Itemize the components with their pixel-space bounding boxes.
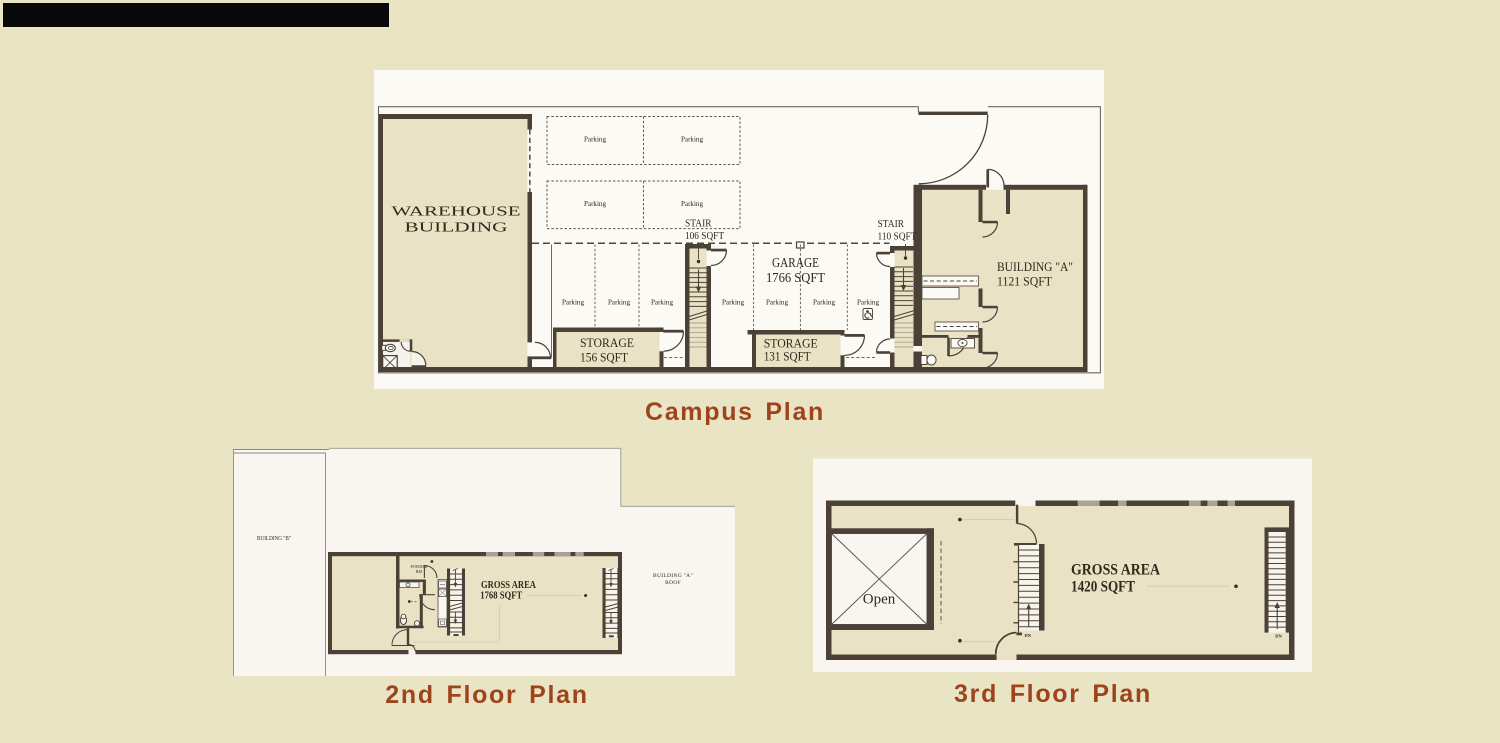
svg-text:1420 SQFT: 1420 SQFT [1071,578,1136,595]
svg-text:Parking: Parking [681,199,703,208]
svg-text:GARAGE: GARAGE [772,255,819,270]
svg-text:WAREHOUSE: WAREHOUSE [392,205,521,220]
svg-text:1121 SQFT: 1121 SQFT [997,274,1052,289]
svg-text:STORAGE: STORAGE [580,336,634,350]
svg-text:1768 SQFT: 1768 SQFT [480,590,523,602]
svg-text:STAIR: STAIR [685,219,712,230]
svg-text:DN: DN [1025,633,1032,638]
svg-text:DN: DN [1275,634,1282,639]
svg-text:Parking: Parking [584,199,606,208]
svg-text:Parking: Parking [813,298,835,307]
svg-text:Parking: Parking [584,135,606,144]
svg-text:BUILDING "A": BUILDING "A" [653,573,693,579]
svg-text:156 SQFT: 156 SQFT [580,351,628,365]
svg-text:110 SQFT: 110 SQFT [878,232,917,243]
svg-text:BUILDING: BUILDING [405,221,508,236]
svg-text:RM: RM [416,569,423,574]
svg-text:Parking: Parking [608,298,630,307]
svg-text:Parking: Parking [857,298,879,307]
svg-text:Parking: Parking [651,298,673,307]
svg-text:Parking: Parking [722,298,744,307]
svg-text:STORAGE: STORAGE [764,336,818,350]
svg-text:131 SQFT: 131 SQFT [764,350,811,364]
svg-text:GROSS AREA: GROSS AREA [1071,562,1161,579]
svg-text:Open: Open [863,592,896,608]
svg-text:106 SQFT: 106 SQFT [685,231,724,242]
svg-text:BUILDING "A": BUILDING "A" [997,259,1073,274]
svg-text:Parking: Parking [681,135,703,144]
svg-text:1766 SQFT: 1766 SQFT [766,270,826,285]
svg-text:BUILDING "B": BUILDING "B" [257,536,291,542]
svg-text:STAIR: STAIR [878,219,905,230]
svg-text:Parking: Parking [766,298,788,307]
svg-text:Parking: Parking [562,298,584,307]
svg-text:ROOF: ROOF [665,580,681,586]
